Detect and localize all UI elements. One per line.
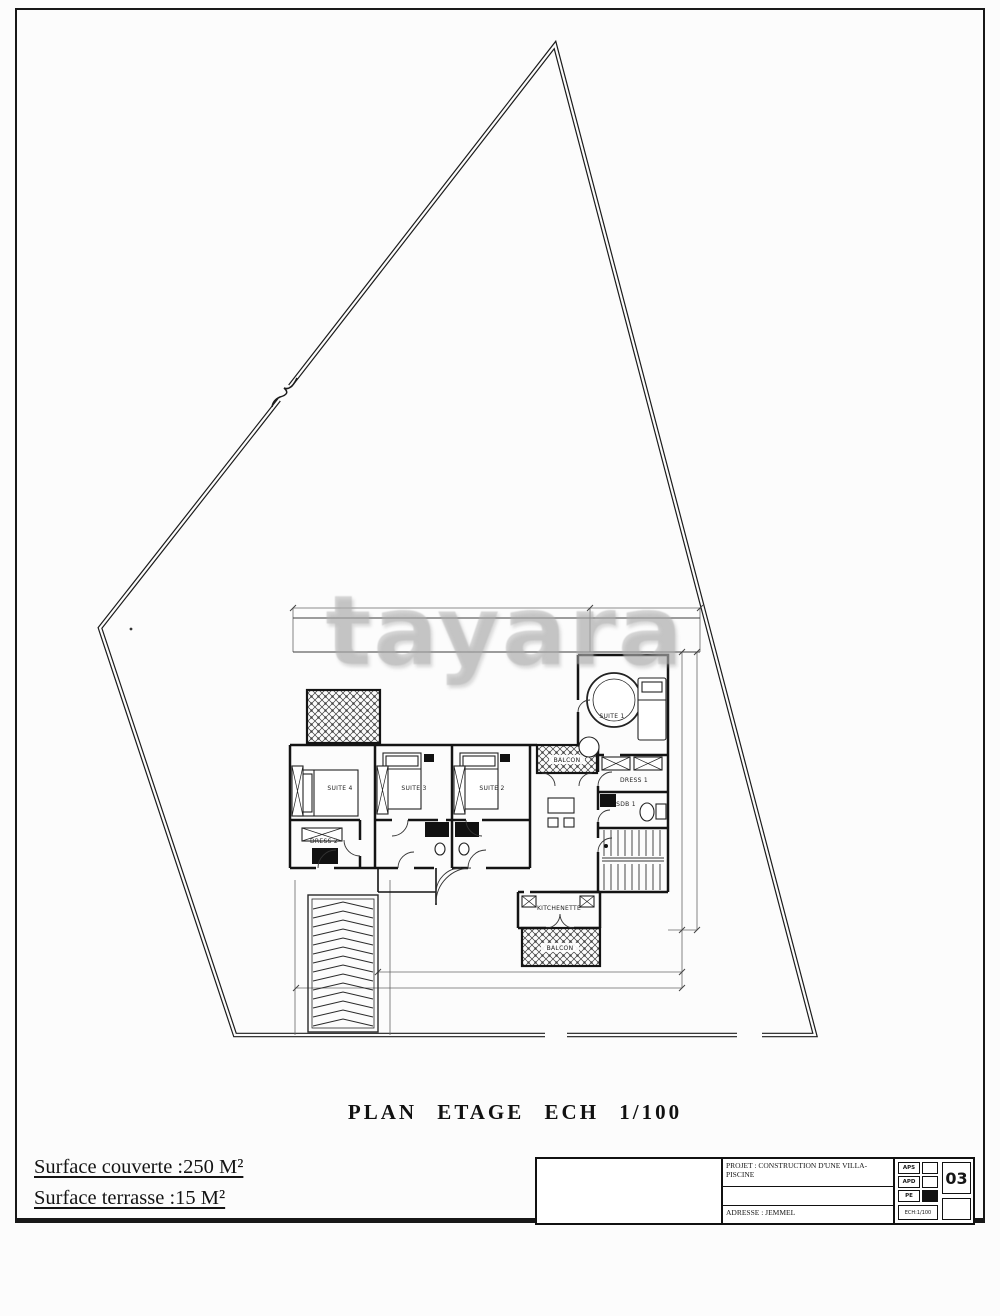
- room-label-suite3: SUITE 3: [401, 785, 426, 792]
- sheet-empty-box: [942, 1198, 971, 1220]
- address-text: ADRESSE : JEMMEL: [723, 1206, 893, 1223]
- surface-notes: Surface couverte :250 M² Surface terrass…: [34, 1152, 243, 1214]
- bed-suite2: [454, 753, 510, 814]
- title-block-empty-panel: [537, 1159, 723, 1223]
- phase-aps-label: APS: [898, 1162, 920, 1174]
- phase-pe-label: PE: [898, 1190, 920, 1202]
- survey-mark: [130, 628, 133, 631]
- staircase: [602, 830, 664, 890]
- scanned-floor-plan-page: SUITE 1 DRESS 1 SDB 1 SUITE 4 SUITE 3 SU…: [0, 0, 1000, 1316]
- room-label-dress1: DRESS 1: [620, 777, 648, 784]
- stair-newel: [604, 844, 608, 848]
- scale-box: ECH:1/100: [898, 1205, 938, 1220]
- bed-suite3: [377, 753, 434, 814]
- toilet: [640, 803, 666, 821]
- sheet-number: 03: [942, 1162, 971, 1194]
- room-label-suite2: SUITE 2: [479, 785, 504, 792]
- project-spacer-row: [723, 1187, 893, 1206]
- room-label-sdb1: SDB 1: [616, 801, 636, 808]
- hall-furniture: [548, 798, 574, 827]
- phase-apd-box: [922, 1176, 938, 1188]
- room-label-suite1: SUITE 1: [599, 713, 624, 720]
- room-label-kitchenette: KITCHENETTE: [537, 905, 581, 912]
- room-label-dress2: DRESS 2: [310, 838, 338, 845]
- drawing-title: PLAN ETAGE ECH 1/100: [300, 1100, 730, 1125]
- title-block-project-panel: PROJET : CONSTRUCTION D'UNE VILLA-PISCIN…: [723, 1159, 895, 1223]
- project-text: PROJET : CONSTRUCTION D'UNE VILLA-PISCIN…: [723, 1159, 893, 1187]
- title-block: PROJET : CONSTRUCTION D'UNE VILLA-PISCIN…: [535, 1157, 975, 1225]
- site-boundary: [100, 45, 815, 1035]
- dress2-closet: [302, 828, 342, 864]
- dressing-wardrobes: [602, 757, 662, 770]
- room-label-balcon-bottom: BALCON: [547, 945, 574, 952]
- phase-apd-label: APD: [898, 1176, 920, 1188]
- title-block-revision-panel: APS APD PE ECH:1/100 03: [895, 1159, 973, 1223]
- entry-step-arcs: [436, 868, 471, 903]
- room-label-balcon-center: BALCON: [554, 757, 581, 764]
- chevron-canopy: [308, 895, 378, 1032]
- phase-aps-box: [922, 1162, 938, 1174]
- surface-terrasse-text: Surface terrasse :15 M²: [34, 1183, 243, 1214]
- wc-shower: [600, 794, 616, 807]
- balcony-top-left: [307, 690, 380, 743]
- washbasin: [579, 737, 599, 757]
- suite1-bed: [638, 678, 666, 740]
- phase-pe-box-filled: [922, 1190, 938, 1202]
- surface-couverte-text: Surface couverte :250 M²: [34, 1152, 243, 1183]
- room-label-suite4: SUITE 4: [327, 785, 352, 792]
